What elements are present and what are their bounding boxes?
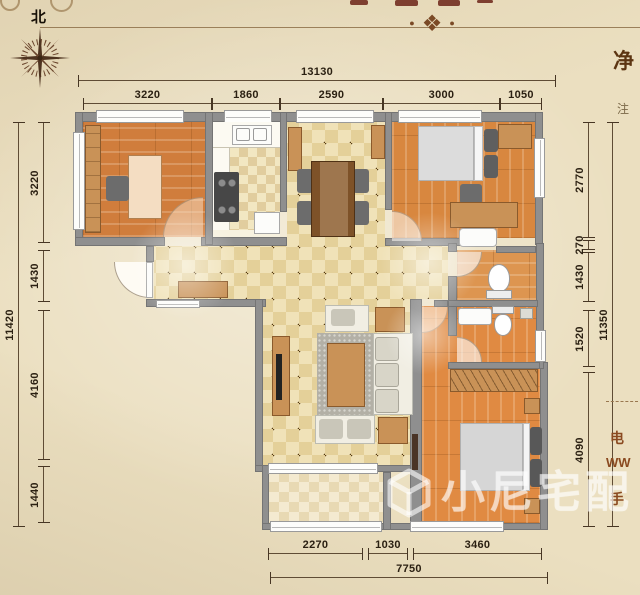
stove [214, 172, 239, 222]
dim-label: 1860 [213, 89, 279, 101]
dim-left-total: 11420 [13, 122, 25, 527]
wall [434, 300, 448, 307]
title-fragment [477, 0, 493, 3]
dim-left-seg: 4160 [38, 310, 50, 460]
sofa-cushion [375, 337, 399, 361]
dim-label: 2770 [574, 167, 586, 193]
dim-right-seg: 2770 [583, 122, 595, 238]
loveseat-cushion [347, 419, 371, 439]
dim-right-seg: 1520 [583, 310, 595, 367]
washbasin [459, 228, 497, 247]
wall [146, 246, 154, 262]
loveseat-cushion [319, 419, 343, 439]
wall [75, 237, 165, 246]
wardrobe [85, 125, 101, 233]
floor-plan-page: ● ❖ ● 北 13130 3220 1860 2590 3000 1050 1… [0, 0, 640, 595]
dining-cabinet [288, 127, 302, 171]
nightstand [524, 398, 540, 414]
bed-headboard [474, 126, 483, 181]
dining-chair [353, 201, 369, 225]
edge-note-label: 注 [617, 100, 629, 117]
dim-label: 13130 [79, 66, 555, 78]
window [156, 300, 200, 308]
ornament-dot-icon: ● [409, 19, 414, 28]
wall [448, 243, 457, 252]
coffee-table [327, 343, 365, 407]
brand-cube-logo-icon [386, 468, 432, 518]
dim-label: 11350 [598, 309, 610, 340]
balcony-slider-window [268, 463, 378, 474]
closet [450, 369, 538, 392]
wardrobe [498, 124, 532, 149]
wall [385, 112, 392, 210]
door-leaf-bedroom3 [412, 434, 418, 470]
dim-label: 1520 [574, 326, 586, 352]
dim-label: 11420 [4, 309, 16, 340]
brand-watermark-text: 小尼宅配 [441, 471, 633, 515]
bed-pillow [530, 427, 542, 455]
dim-label: 1030 [369, 539, 407, 551]
bed-pillow [484, 155, 498, 178]
toilet-tank [492, 306, 514, 314]
dim-bottom-seg: 1030 [368, 548, 408, 560]
desk [450, 202, 518, 228]
edge-dash-rule [606, 401, 638, 402]
header-ornament: ● ❖ ● [392, 12, 472, 35]
wall [280, 112, 287, 212]
fleur-ornament-icon: ❖ [422, 12, 443, 35]
dim-label: 1050 [501, 89, 541, 101]
tv [276, 354, 282, 400]
bed [418, 126, 474, 181]
dim-label: 7750 [271, 563, 547, 575]
edge-net-label: 净 [613, 45, 634, 75]
dim-label: 4160 [29, 372, 41, 398]
sink-bowl [253, 128, 267, 141]
room-balcony-floor [269, 472, 383, 523]
kitchen-appliance [254, 212, 280, 234]
washbasin [458, 308, 492, 325]
corner-scroll-icon [0, 0, 20, 11]
shoe-cabinet [178, 281, 228, 298]
sofa-cushion [375, 389, 399, 413]
wall [201, 237, 287, 246]
wall [205, 112, 213, 245]
entry-door-swing [114, 262, 150, 298]
compass-rose-icon [8, 26, 72, 90]
header-rule [40, 27, 640, 28]
dim-top-seg: 2590 [280, 98, 383, 110]
dining-table [311, 161, 355, 237]
window [534, 138, 545, 198]
dim-top-seg: 1860 [212, 98, 280, 110]
dim-top-seg: 1050 [500, 98, 542, 110]
dim-label: 3460 [414, 539, 541, 551]
dim-left-seg: 1430 [38, 250, 50, 302]
brand-watermark: 小尼宅配 [386, 468, 633, 518]
dim-label: 3220 [29, 170, 41, 196]
title-fragment [395, 0, 418, 6]
window [410, 521, 504, 532]
title-fragment [350, 0, 368, 5]
dining-chair [353, 169, 369, 193]
desk-chair [460, 184, 482, 204]
window [535, 330, 546, 362]
sink-bowl [236, 128, 250, 141]
wall [448, 362, 540, 369]
bath-fixture [520, 308, 533, 319]
window [398, 110, 482, 123]
window [296, 110, 374, 123]
dim-bottom-seg: 3460 [413, 548, 542, 560]
armchair-cushion [331, 309, 355, 326]
toilet-bowl [488, 264, 510, 292]
dim-right-seg: 1430 [583, 252, 595, 302]
dim-label: 1430 [29, 263, 41, 289]
title-fragment [438, 0, 460, 6]
dim-label: 3000 [384, 89, 499, 101]
dim-label: 2270 [269, 539, 362, 551]
dim-label: 4090 [574, 437, 586, 463]
edge-phone-label: 电 [610, 428, 624, 448]
dim-label: 2590 [281, 89, 382, 101]
side-table [378, 417, 408, 444]
wall [262, 465, 269, 530]
dim-top-total: 13130 [78, 75, 556, 87]
dim-left-seg: 3220 [38, 122, 50, 243]
side-table [375, 307, 405, 332]
dim-label: 3220 [84, 89, 211, 101]
dim-bottom-seg: 2270 [268, 548, 363, 560]
toilet-bowl [494, 314, 512, 336]
desk-chair [106, 176, 129, 201]
dim-bottom-total: 7750 [270, 572, 548, 584]
desk [128, 155, 162, 219]
ornament-dot-icon: ● [449, 19, 454, 28]
dim-top-seg: 3220 [83, 98, 212, 110]
dim-top-seg: 3000 [383, 98, 500, 110]
window [96, 110, 184, 123]
corner-scroll-icon [50, 0, 73, 12]
dim-right-seg: 270 [583, 240, 595, 250]
dining-cabinet [371, 125, 385, 159]
dim-label: 1430 [574, 264, 586, 290]
sofa-cushion [375, 363, 399, 387]
north-label: 北 [31, 6, 46, 27]
entry-door-leaf [146, 262, 153, 298]
window [73, 132, 85, 230]
dim-left-seg: 1440 [38, 466, 50, 523]
toilet-tank [486, 290, 512, 299]
dim-label: 1440 [29, 482, 41, 508]
window [270, 521, 382, 532]
bed-pillow [484, 129, 498, 152]
wall [255, 299, 263, 472]
wall [496, 246, 536, 253]
